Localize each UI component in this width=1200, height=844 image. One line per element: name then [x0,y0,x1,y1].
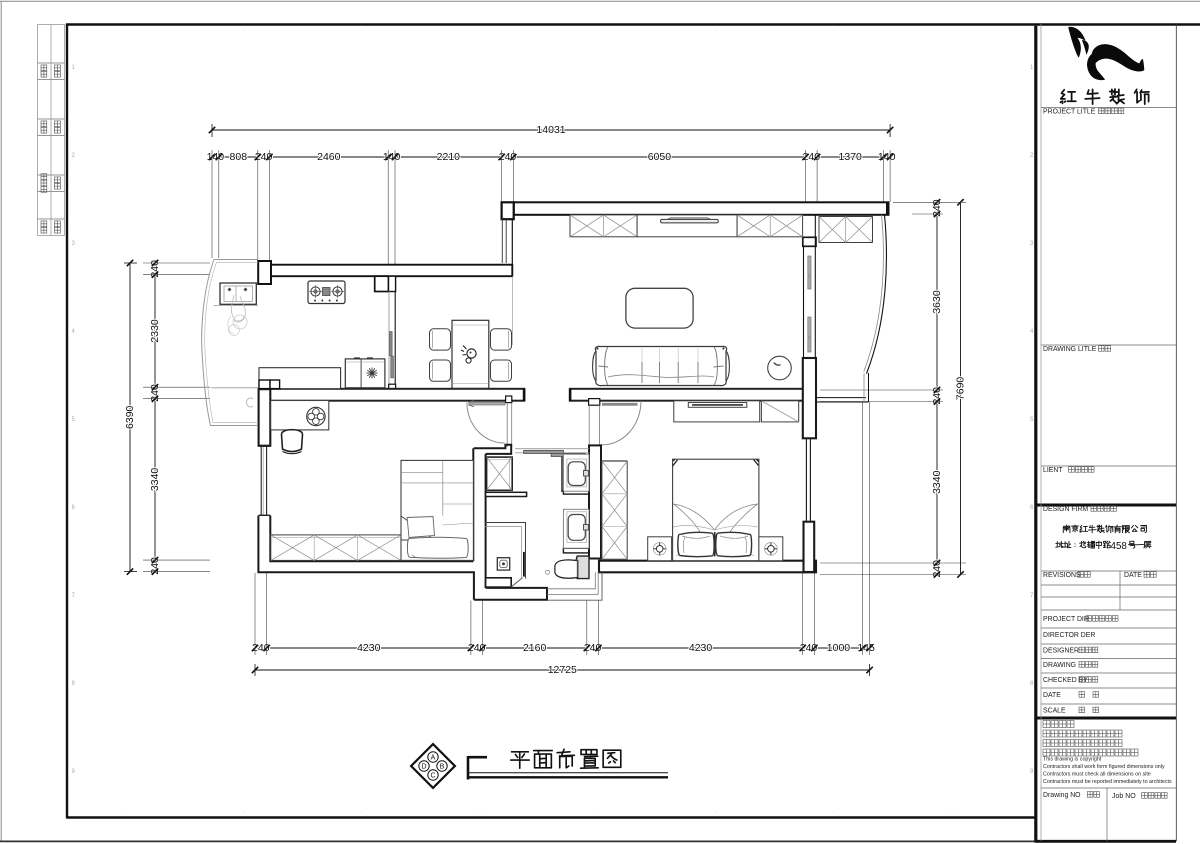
svg-text:This drawing is copyright: This drawing is copyright [1043,757,1102,763]
svg-text:2460: 2460 [317,151,341,163]
svg-text:12725: 12725 [548,664,577,676]
svg-text:6050: 6050 [648,151,672,163]
svg-text:CHECKED BY: CHECKED BY [1043,677,1088,684]
svg-text:LIENT: LIENT [1043,467,1063,474]
svg-text:DATE: DATE [1043,692,1061,699]
svg-text:145: 145 [857,642,875,654]
svg-text:808: 808 [230,151,248,163]
svg-text:REVISIONS: REVISIONS [1043,572,1081,579]
svg-text:D: D [421,763,426,770]
svg-text:4230: 4230 [689,642,713,654]
svg-text:DESIGN FIRM: DESIGN FIRM [1043,506,1088,513]
svg-text:3340: 3340 [931,470,943,494]
svg-text:Contractors shall work form fi: Contractors shall work form figured dime… [1043,764,1165,770]
svg-text:2160: 2160 [523,642,547,654]
svg-text:DRAWING: DRAWING [1043,662,1076,669]
svg-text:C: C [430,772,435,779]
svg-text:2330: 2330 [149,319,161,343]
svg-text:Job NO: Job NO [1112,793,1136,800]
svg-text:DATE: DATE [1124,572,1142,579]
svg-text:1370: 1370 [839,151,863,163]
svg-text:6390: 6390 [124,405,136,429]
svg-text:3340: 3340 [149,468,161,492]
svg-text:7690: 7690 [955,377,967,401]
svg-text:140: 140 [207,151,225,163]
svg-text:PROJECT LITLE: PROJECT LITLE [1043,109,1096,116]
svg-text:3630: 3630 [931,290,943,314]
svg-text:Contractors must check all dim: Contractors must check all dimensions on… [1043,772,1151,778]
svg-text:4230: 4230 [357,642,381,654]
svg-text:Drawing NO: Drawing NO [1043,792,1081,799]
svg-text:A: A [431,754,436,761]
svg-text:PROJECT DIR: PROJECT DIR [1043,616,1089,623]
svg-text:DRAWING LITLE: DRAWING LITLE [1043,346,1097,353]
svg-text:140: 140 [383,151,401,163]
svg-text:14031: 14031 [536,124,565,136]
svg-text:458: 458 [1111,541,1128,552]
svg-text:2210: 2210 [437,151,461,163]
svg-text:DESIGNER: DESIGNER [1043,648,1079,655]
svg-text:1000: 1000 [827,642,851,654]
svg-text:SCALE: SCALE [1043,708,1066,715]
svg-text:DIRECTOR DER: DIRECTOR DER [1043,632,1095,639]
svg-text:B: B [440,763,445,770]
svg-text:Contractors must be reported i: Contractors must be reported immediately… [1043,779,1172,785]
svg-text:140: 140 [878,151,896,163]
